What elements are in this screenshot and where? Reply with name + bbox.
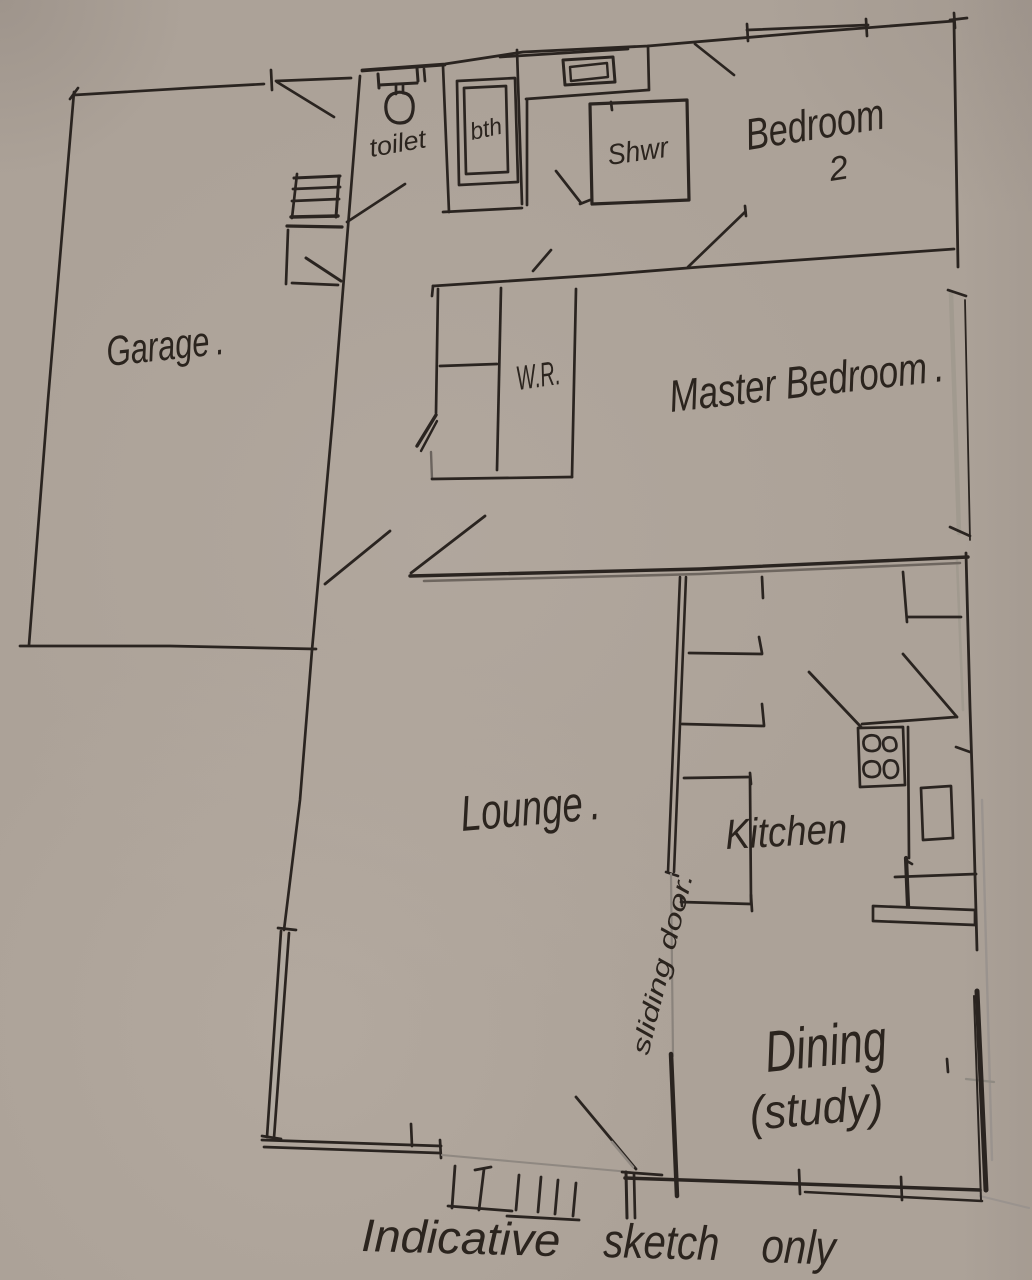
svg-text:sliding door.: sliding door. — [627, 870, 699, 1057]
svg-text:only: only — [761, 1220, 839, 1276]
svg-text:Kitchen: Kitchen — [724, 805, 848, 858]
svg-text:sketch: sketch — [603, 1215, 720, 1271]
svg-text:W.R.: W.R. — [514, 354, 563, 398]
svg-text:Indicative: Indicative — [361, 1209, 561, 1266]
svg-text:Shwr: Shwr — [606, 132, 672, 172]
svg-text:Bedroom: Bedroom — [742, 90, 888, 160]
svg-text:Garage .: Garage . — [104, 316, 226, 375]
svg-text:Lounge .: Lounge . — [458, 774, 602, 842]
svg-text:Master Bedroom .: Master Bedroom . — [666, 340, 946, 422]
svg-text:(study): (study) — [747, 1076, 885, 1140]
svg-text:2: 2 — [825, 148, 851, 189]
svg-text:bth: bth — [468, 113, 505, 146]
svg-text:toilet: toilet — [367, 123, 430, 163]
svg-text:Dining: Dining — [762, 1008, 890, 1085]
